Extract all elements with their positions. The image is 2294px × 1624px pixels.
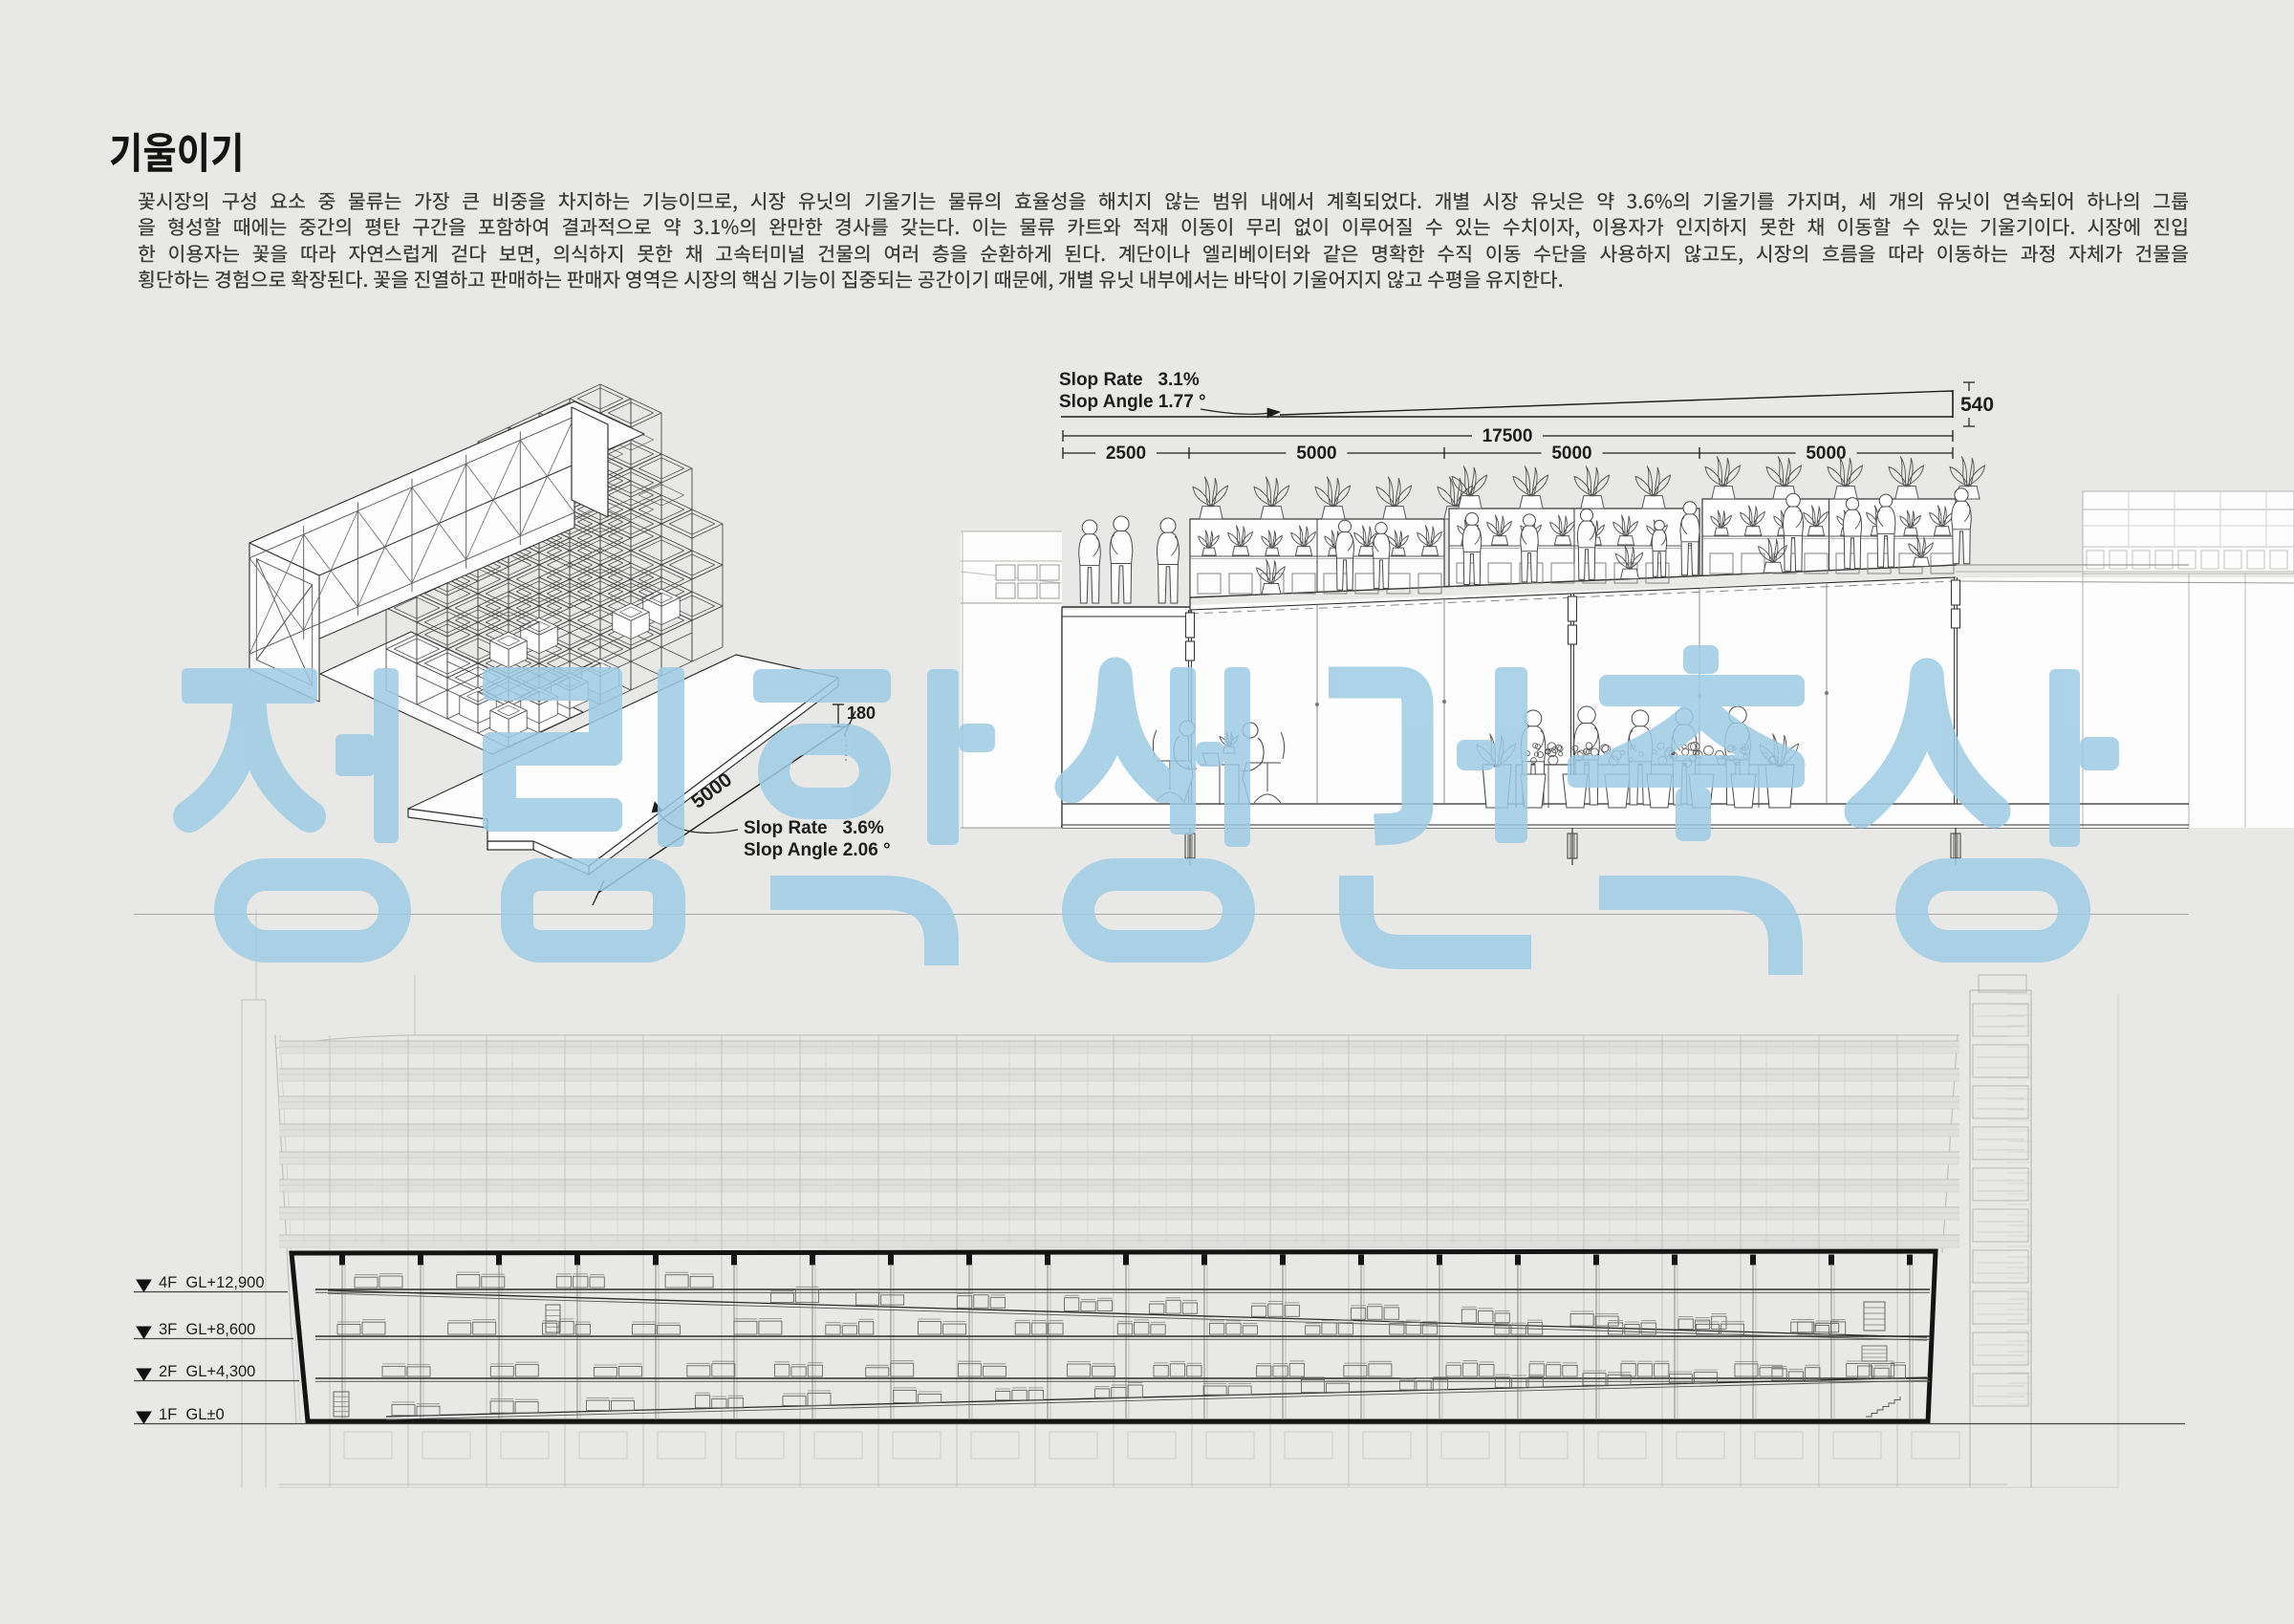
svg-text:5000: 5000 xyxy=(1296,444,1336,464)
svg-text:17500: 17500 xyxy=(1482,426,1533,446)
svg-text:Slop Rate 3.1%: Slop Rate 3.1% xyxy=(1059,370,1200,390)
svg-text:4F GL+12,900: 4F GL+12,900 xyxy=(159,1274,265,1291)
svg-text:540: 540 xyxy=(1960,394,1994,416)
svg-text:2500: 2500 xyxy=(1106,444,1146,464)
svg-text:Slop Angle 2.06 °: Slop Angle 2.06 ° xyxy=(744,840,891,860)
svg-text:Slop Angle 1.77 °: Slop Angle 1.77 ° xyxy=(1059,392,1206,412)
svg-text:3F GL+8,600: 3F GL+8,600 xyxy=(159,1321,255,1338)
svg-text:Slop Rate 3.6%: Slop Rate 3.6% xyxy=(744,818,884,838)
svg-text:5000: 5000 xyxy=(1551,444,1591,464)
svg-text:1F GL±0: 1F GL±0 xyxy=(159,1406,225,1423)
svg-text:2F GL+4,300: 2F GL+4,300 xyxy=(159,1363,255,1380)
